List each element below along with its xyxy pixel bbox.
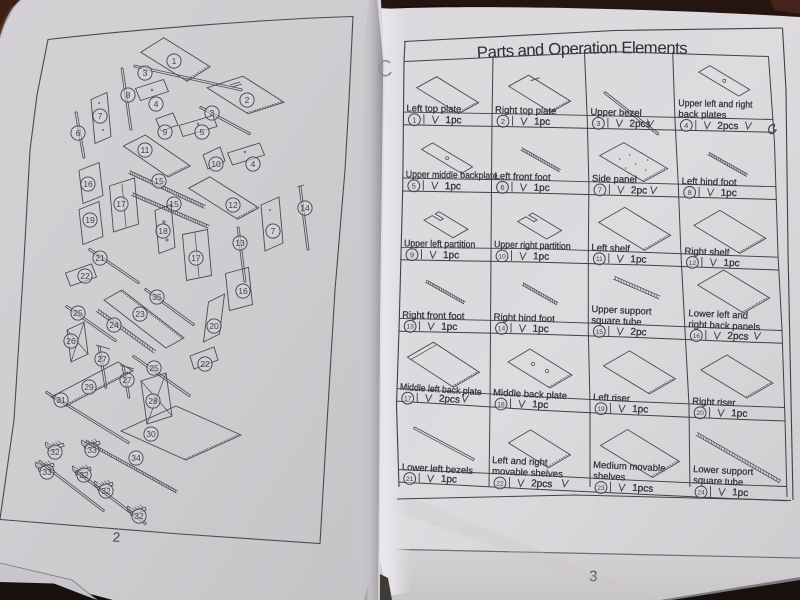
svg-text:20: 20 — [696, 410, 704, 417]
svg-text:12: 12 — [689, 260, 697, 267]
svg-text:1pc: 1pc — [731, 408, 748, 420]
svg-text:shelves: shelves — [593, 471, 626, 484]
svg-text:23: 23 — [135, 309, 145, 319]
svg-text:27: 27 — [122, 375, 132, 385]
svg-text:1: 1 — [172, 56, 177, 66]
svg-text:18: 18 — [497, 402, 505, 409]
svg-text:21: 21 — [406, 476, 414, 483]
svg-text:17: 17 — [191, 253, 201, 263]
svg-text:3: 3 — [143, 68, 148, 78]
svg-text:9: 9 — [163, 127, 168, 137]
svg-text:27: 27 — [97, 354, 107, 364]
svg-text:28: 28 — [148, 396, 158, 406]
svg-text:2: 2 — [501, 117, 505, 126]
svg-text:1pc: 1pc — [534, 117, 550, 128]
svg-text:1pc: 1pc — [533, 251, 549, 262]
svg-text:1pc: 1pc — [723, 258, 740, 270]
svg-text:22: 22 — [200, 359, 210, 369]
svg-text:24: 24 — [109, 320, 119, 330]
svg-text:30: 30 — [146, 429, 156, 439]
svg-text:1pc: 1pc — [443, 250, 459, 261]
svg-text:14: 14 — [300, 203, 310, 213]
svg-text:32: 32 — [134, 511, 144, 521]
svg-text:34: 34 — [131, 453, 141, 463]
svg-text:Upper left partition: Upper left partition — [404, 238, 475, 250]
svg-text:26: 26 — [66, 336, 76, 346]
svg-text:7: 7 — [598, 186, 602, 195]
svg-text:14: 14 — [498, 326, 506, 333]
svg-text:25: 25 — [73, 308, 83, 318]
svg-text:6: 6 — [500, 183, 504, 192]
svg-text:1pc: 1pc — [445, 181, 461, 192]
svg-text:15: 15 — [169, 199, 179, 209]
svg-text:31: 31 — [56, 395, 66, 405]
svg-text:17: 17 — [116, 199, 126, 209]
svg-text:1pc: 1pc — [441, 474, 458, 486]
svg-text:15: 15 — [154, 176, 164, 186]
svg-text:11: 11 — [141, 145, 150, 155]
svg-text:1pc: 1pc — [532, 324, 548, 336]
svg-text:16: 16 — [83, 179, 93, 189]
svg-text:1pc: 1pc — [632, 404, 649, 416]
svg-text:13: 13 — [235, 238, 245, 248]
svg-text:2: 2 — [245, 95, 250, 105]
svg-text:1pc: 1pc — [630, 254, 647, 266]
svg-text:1pc: 1pc — [532, 399, 549, 411]
svg-text:Upper right partition: Upper right partition — [494, 239, 571, 251]
svg-text:1: 1 — [412, 115, 416, 124]
svg-text:1pc: 1pc — [732, 487, 749, 499]
svg-text:19: 19 — [597, 406, 605, 413]
svg-text:Upper middle backplate: Upper middle backplate — [406, 169, 498, 181]
svg-text:3: 3 — [596, 119, 600, 128]
svg-text:4: 4 — [251, 159, 256, 169]
svg-text:23: 23 — [597, 485, 605, 492]
svg-text:4: 4 — [154, 99, 159, 109]
svg-text:2pc: 2pc — [630, 327, 647, 339]
svg-text:4: 4 — [684, 121, 688, 130]
svg-text:22: 22 — [80, 271, 90, 281]
svg-text:2: 2 — [112, 530, 120, 545]
svg-text:11: 11 — [596, 256, 603, 263]
svg-text:1pc: 1pc — [441, 322, 457, 333]
svg-text:2pcs: 2pcs — [717, 121, 738, 132]
svg-text:8: 8 — [687, 188, 691, 197]
svg-text:2pc: 2pc — [631, 185, 647, 196]
svg-text:1pc: 1pc — [445, 115, 461, 126]
svg-text:2pcs: 2pcs — [727, 331, 749, 343]
svg-text:Upper left and right: Upper left and right — [678, 98, 753, 110]
svg-text:1pc: 1pc — [721, 188, 737, 199]
svg-text:6: 6 — [76, 128, 81, 138]
svg-text:25: 25 — [149, 363, 159, 373]
svg-text:19: 19 — [85, 215, 95, 225]
svg-text:20: 20 — [209, 321, 219, 331]
svg-text:5: 5 — [412, 182, 416, 191]
svg-text:2pcs: 2pcs — [531, 478, 553, 490]
svg-text:35: 35 — [152, 292, 162, 302]
svg-text:16: 16 — [238, 286, 248, 296]
svg-text:7: 7 — [271, 226, 276, 236]
svg-text:8: 8 — [126, 90, 131, 100]
svg-text:17: 17 — [404, 396, 412, 403]
svg-text:16: 16 — [693, 333, 701, 340]
svg-text:15: 15 — [596, 329, 604, 336]
svg-text:32: 32 — [50, 447, 60, 457]
svg-text:21: 21 — [95, 253, 105, 263]
svg-text:22: 22 — [496, 480, 504, 487]
svg-text:7: 7 — [98, 111, 103, 121]
svg-text:2pcs: 2pcs — [439, 394, 461, 406]
svg-text:9: 9 — [410, 250, 414, 259]
svg-text:10: 10 — [211, 159, 221, 169]
svg-text:24: 24 — [697, 489, 705, 496]
svg-text:5: 5 — [200, 127, 205, 137]
svg-text:10: 10 — [498, 253, 506, 260]
svg-text:29: 29 — [84, 382, 94, 392]
svg-text:13: 13 — [406, 324, 414, 331]
svg-text:1pcs: 1pcs — [632, 483, 654, 495]
svg-text:1pc: 1pc — [533, 183, 549, 194]
svg-text:18: 18 — [158, 226, 168, 236]
svg-text:12: 12 — [228, 200, 238, 210]
